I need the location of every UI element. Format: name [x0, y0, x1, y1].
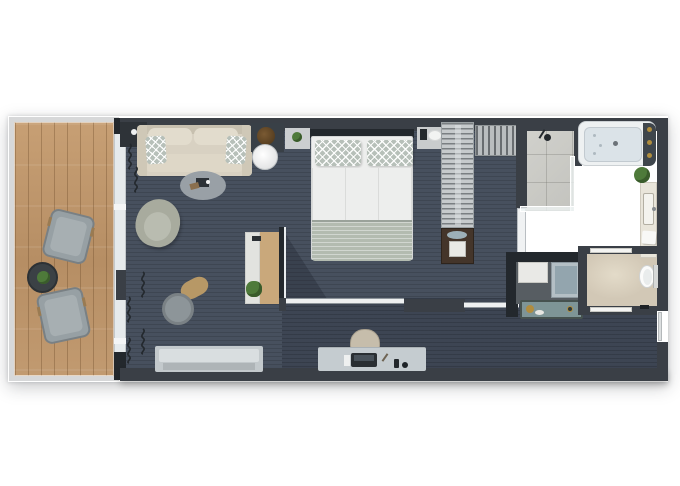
curtain-icon: [132, 166, 141, 193]
safe-icon: [449, 241, 466, 257]
desk-accessory: [252, 236, 261, 241]
chair-seat: [49, 216, 88, 257]
wall-stub: [279, 298, 286, 311]
floor-mat: [640, 305, 649, 309]
balcony-lounge-chair: [35, 286, 92, 346]
phone: [394, 359, 399, 368]
pen-icon: [382, 353, 389, 362]
bench-base: [163, 363, 255, 370]
glass-sliding-wall: [114, 132, 126, 368]
bed-duvet: [312, 168, 412, 220]
chair-armrest: [47, 217, 52, 226]
wc-wall: [578, 246, 587, 315]
bathtub-deck: [643, 123, 656, 166]
curtain-icon: [139, 328, 148, 355]
toilet-bowl: [643, 269, 652, 285]
coffee-table-rug: [180, 171, 226, 200]
bathtub: [578, 121, 656, 166]
jet-icon: [593, 152, 596, 155]
dish-icon: [535, 310, 544, 315]
luggage-counter: [518, 262, 548, 283]
nightstand-left: [285, 128, 310, 149]
mug-icon: [402, 362, 408, 368]
niche-wall-top: [506, 252, 586, 262]
decor-box: [420, 129, 427, 140]
desk-plant-icon: [246, 281, 262, 297]
tray-icon: [257, 127, 275, 145]
shower-glass-door: [520, 206, 575, 212]
faucet-icon: [652, 207, 656, 211]
minibar-safe-cabinet: [441, 228, 474, 264]
chair-armrest: [37, 307, 42, 316]
wc-door: [590, 307, 632, 312]
corridor-wall: [404, 299, 465, 312]
jar-icon: [567, 306, 573, 312]
sliding-door-track: [285, 298, 404, 304]
kettle-icon: [526, 305, 534, 313]
faucet-icon: [647, 140, 652, 145]
curtain-icon: [125, 337, 134, 364]
curtain-icon: [139, 271, 148, 298]
wardrobe-rail: [441, 122, 474, 228]
minibar-console: [520, 300, 583, 319]
notepad: [344, 355, 350, 366]
closet-rail: [475, 125, 518, 156]
armchair-seat: [141, 209, 175, 244]
shower-head-icon: [544, 134, 551, 141]
throw-pillow: [145, 135, 167, 164]
bench-cushion: [159, 349, 259, 362]
laptop-tray: [351, 353, 377, 367]
cup: [206, 180, 210, 184]
sofa: [137, 125, 252, 176]
drain-icon: [613, 141, 618, 146]
curtain-icon: [125, 296, 134, 323]
floor-plan: [0, 0, 680, 486]
basin-bowl: [555, 266, 577, 294]
table-lamp-icon: [428, 130, 442, 141]
bathroom-wall: [516, 118, 527, 208]
plant-icon: [634, 167, 650, 183]
bed-blanket: [312, 220, 412, 261]
throw-pillow: [225, 135, 247, 164]
towel: [642, 231, 657, 245]
wardrobe-rod: [455, 125, 461, 225]
toilet-tank: [653, 265, 658, 288]
window-bench: [155, 346, 263, 372]
table-lamp-icon: [252, 144, 278, 170]
faucet-icon: [647, 153, 652, 158]
entry-door: [658, 312, 662, 341]
jet-icon: [593, 134, 596, 137]
bed-pillow: [315, 140, 361, 166]
bed-pillow: [367, 140, 413, 166]
wash-basin: [551, 262, 581, 298]
nightstand-right: [417, 127, 442, 149]
wc-door: [590, 248, 632, 253]
work-desk: [318, 347, 426, 371]
shower-glass: [570, 156, 575, 212]
book: [189, 182, 199, 190]
writing-desk-wood: [260, 232, 279, 304]
plant-icon: [292, 132, 302, 142]
laptop-screen: [354, 355, 374, 361]
window-mullion: [114, 204, 126, 210]
jet-icon: [599, 144, 602, 147]
bathroom-door: [517, 208, 526, 258]
faucet-icon: [647, 127, 652, 132]
swivel-chair-seat: [162, 293, 194, 325]
partition-glass-edge: [284, 227, 286, 304]
balcony-side-table: [27, 262, 58, 293]
chair-seat: [44, 294, 84, 337]
plant-icon: [37, 271, 50, 284]
tray-icon: [447, 231, 467, 239]
